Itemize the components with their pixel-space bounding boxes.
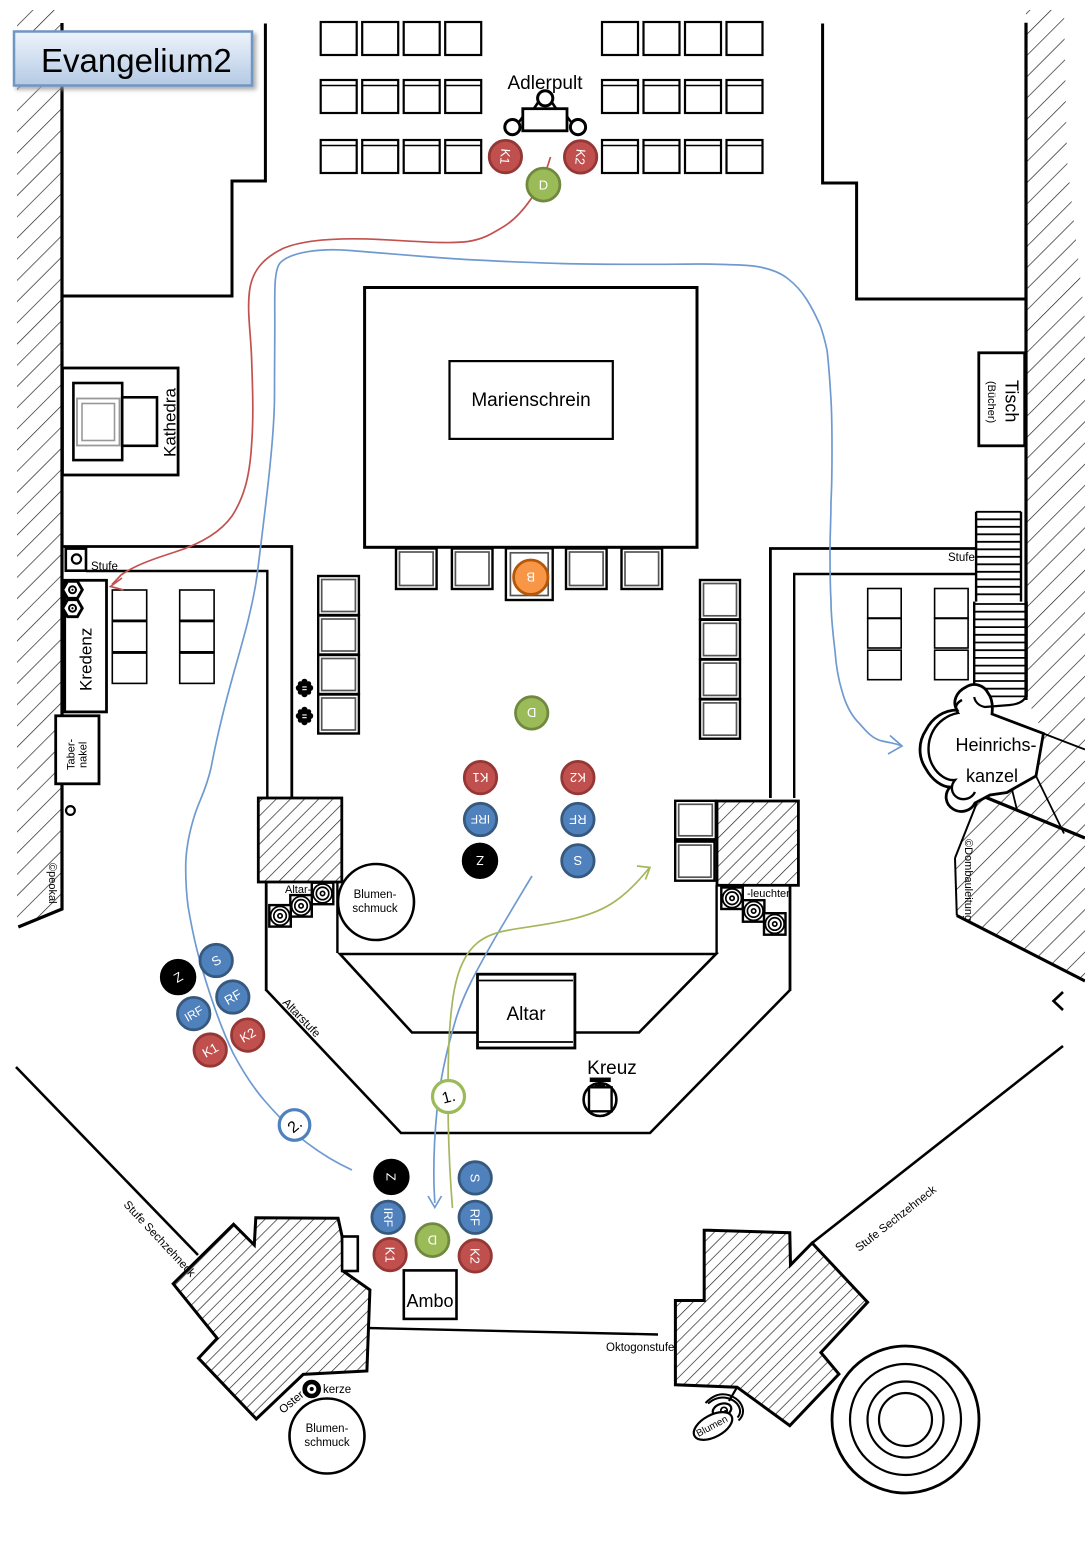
svg-text:Taber-: Taber-: [66, 738, 78, 770]
svg-text:kerze: kerze: [323, 1384, 351, 1396]
svg-text:kanzel: kanzel: [966, 766, 1018, 786]
svg-text:Z: Z: [384, 1173, 399, 1181]
svg-text:Marienschrein: Marienschrein: [471, 390, 590, 411]
svg-text:Kreuz: Kreuz: [587, 1058, 637, 1079]
svg-text:IRF: IRF: [381, 1208, 395, 1227]
svg-text:Kredenz: Kredenz: [77, 628, 96, 691]
svg-text:S: S: [468, 1174, 483, 1183]
svg-text:schmuck: schmuck: [352, 903, 398, 915]
svg-text:©Dombauleitung: ©Dombauleitung: [962, 839, 974, 921]
svg-text:©peokal: ©peokal: [46, 863, 58, 904]
svg-text:D: D: [527, 705, 536, 720]
svg-text:nakel: nakel: [78, 742, 90, 768]
svg-text:Blumen-: Blumen-: [354, 889, 397, 901]
svg-text:Heinrichs-: Heinrichs-: [955, 735, 1036, 755]
svg-text:-leuchter: -leuchter: [747, 888, 790, 900]
svg-text:schmuck: schmuck: [304, 1437, 350, 1449]
svg-text:IRF: IRF: [471, 812, 490, 826]
svg-text:Ambo: Ambo: [406, 1291, 453, 1311]
svg-text:K2: K2: [572, 148, 588, 165]
svg-text:B: B: [526, 570, 535, 585]
svg-text:Oktogonstufe: Oktogonstufe: [606, 1342, 674, 1354]
svg-text:K1: K1: [473, 770, 489, 785]
svg-text:Altar: Altar: [506, 1004, 546, 1025]
svg-text:Z: Z: [476, 853, 484, 868]
svg-text:D: D: [539, 177, 548, 192]
svg-text:Evangelium2: Evangelium2: [41, 42, 232, 79]
svg-text:Stufe: Stufe: [91, 561, 118, 573]
svg-text:RF: RF: [468, 1209, 483, 1226]
svg-text:K1: K1: [497, 148, 513, 165]
svg-text:(Bücher): (Bücher): [985, 381, 997, 423]
svg-text:K2: K2: [570, 770, 586, 785]
svg-text:Stufe: Stufe: [948, 552, 975, 564]
svg-text:K2: K2: [468, 1248, 483, 1264]
svg-text:K1: K1: [382, 1247, 397, 1263]
svg-text:S: S: [573, 853, 582, 868]
svg-text:D: D: [428, 1232, 437, 1247]
svg-text:Tisch: Tisch: [1002, 380, 1022, 422]
svg-text:RF: RF: [569, 812, 586, 827]
svg-text:Kathedra: Kathedra: [161, 387, 180, 457]
svg-text:Blumen-: Blumen-: [306, 1423, 349, 1435]
